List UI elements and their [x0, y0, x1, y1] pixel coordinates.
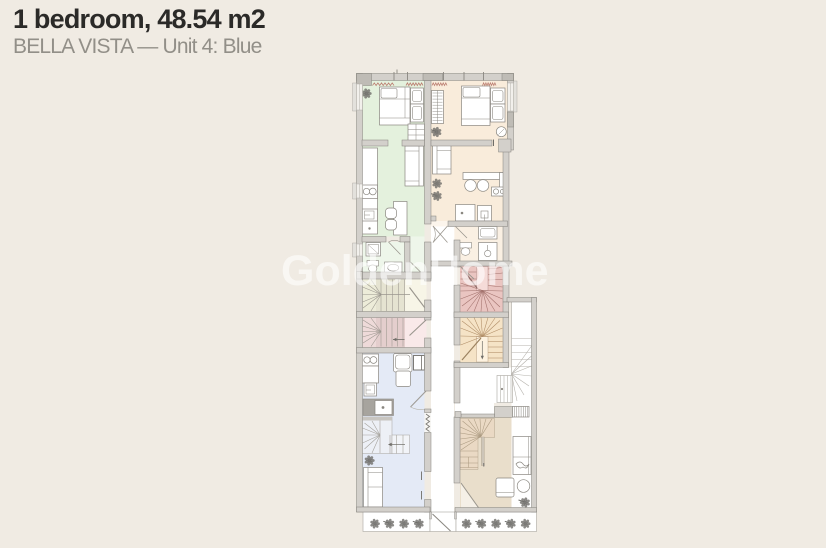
svg-text:GoldenHome: GoldenHome [281, 247, 549, 295]
